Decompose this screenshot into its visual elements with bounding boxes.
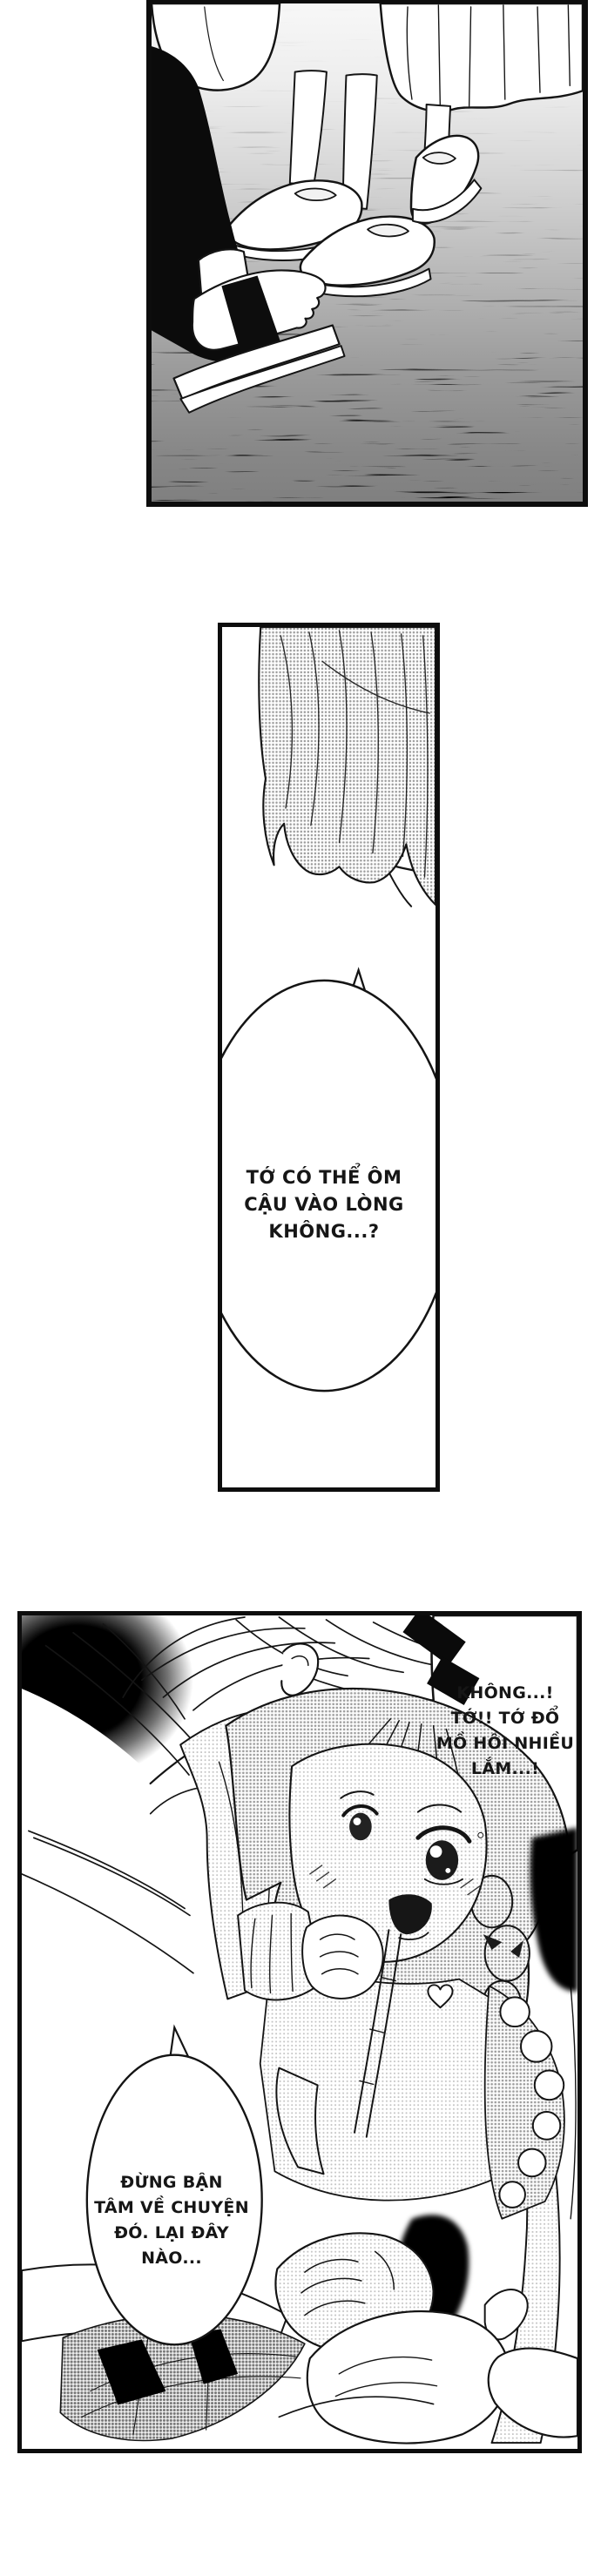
- speech-line: TỚ!! TỚ ĐỔ: [433, 1706, 577, 1731]
- speech-line: KHÔNG...!: [433, 1681, 577, 1706]
- manga-page: TỚ CÓ THỂ ÔM CẬU VÀO LÒNG KHÔNG...? KHÔN…: [0, 0, 601, 2576]
- speech-text-protest: KHÔNG...! TỚ!! TỚ ĐỔ MỒ HÔI NHIỀU LẮM...…: [433, 1681, 577, 1782]
- speech-line: ĐỪNG BẬN: [86, 2170, 257, 2195]
- speech-text-reassure: ĐỪNG BẬN TÂM VỀ CHUYỆN ĐÓ. LẠI ĐÂY NÀO..…: [86, 2170, 257, 2271]
- panel-feet-scene: [146, 0, 588, 507]
- speech-line: ĐÓ. LẠI ĐÂY: [86, 2221, 257, 2246]
- speech-line: TỚ CÓ THỂ ÔM: [228, 1164, 420, 1191]
- speech-line: MỒ HÔI NHIỀU: [433, 1731, 577, 1757]
- feet-scene-art: [152, 3, 583, 502]
- speech-line: KHÔNG...?: [228, 1218, 420, 1245]
- speech-line: LẮM...!: [433, 1757, 577, 1782]
- panel-hug-question: [218, 623, 440, 1492]
- skirt-hem: [381, 3, 583, 111]
- speech-line: TÂM VỀ CHUYỆN: [86, 2195, 257, 2221]
- speech-text-hug-question: TỚ CÓ THỂ ÔM CẬU VÀO LÒNG KHÔNG...?: [228, 1164, 420, 1245]
- speech-line: CẬU VÀO LÒNG: [228, 1191, 420, 1218]
- speech-line: NÀO...: [86, 2246, 257, 2271]
- profile-art: [222, 627, 436, 1487]
